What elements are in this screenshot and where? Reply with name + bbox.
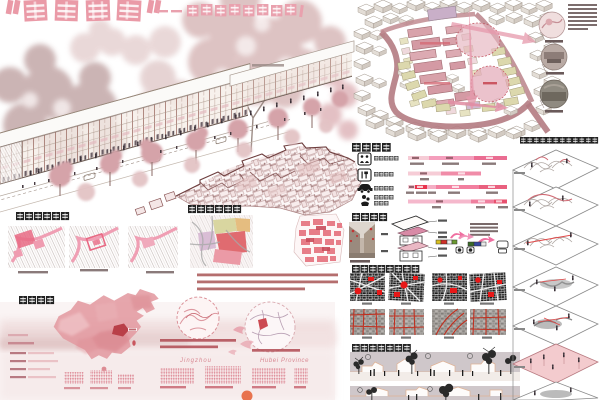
svg-text:Jingzhou: Jingzhou xyxy=(179,358,212,364)
svg-text:Hubei Province: Hubei Province xyxy=(260,358,309,364)
